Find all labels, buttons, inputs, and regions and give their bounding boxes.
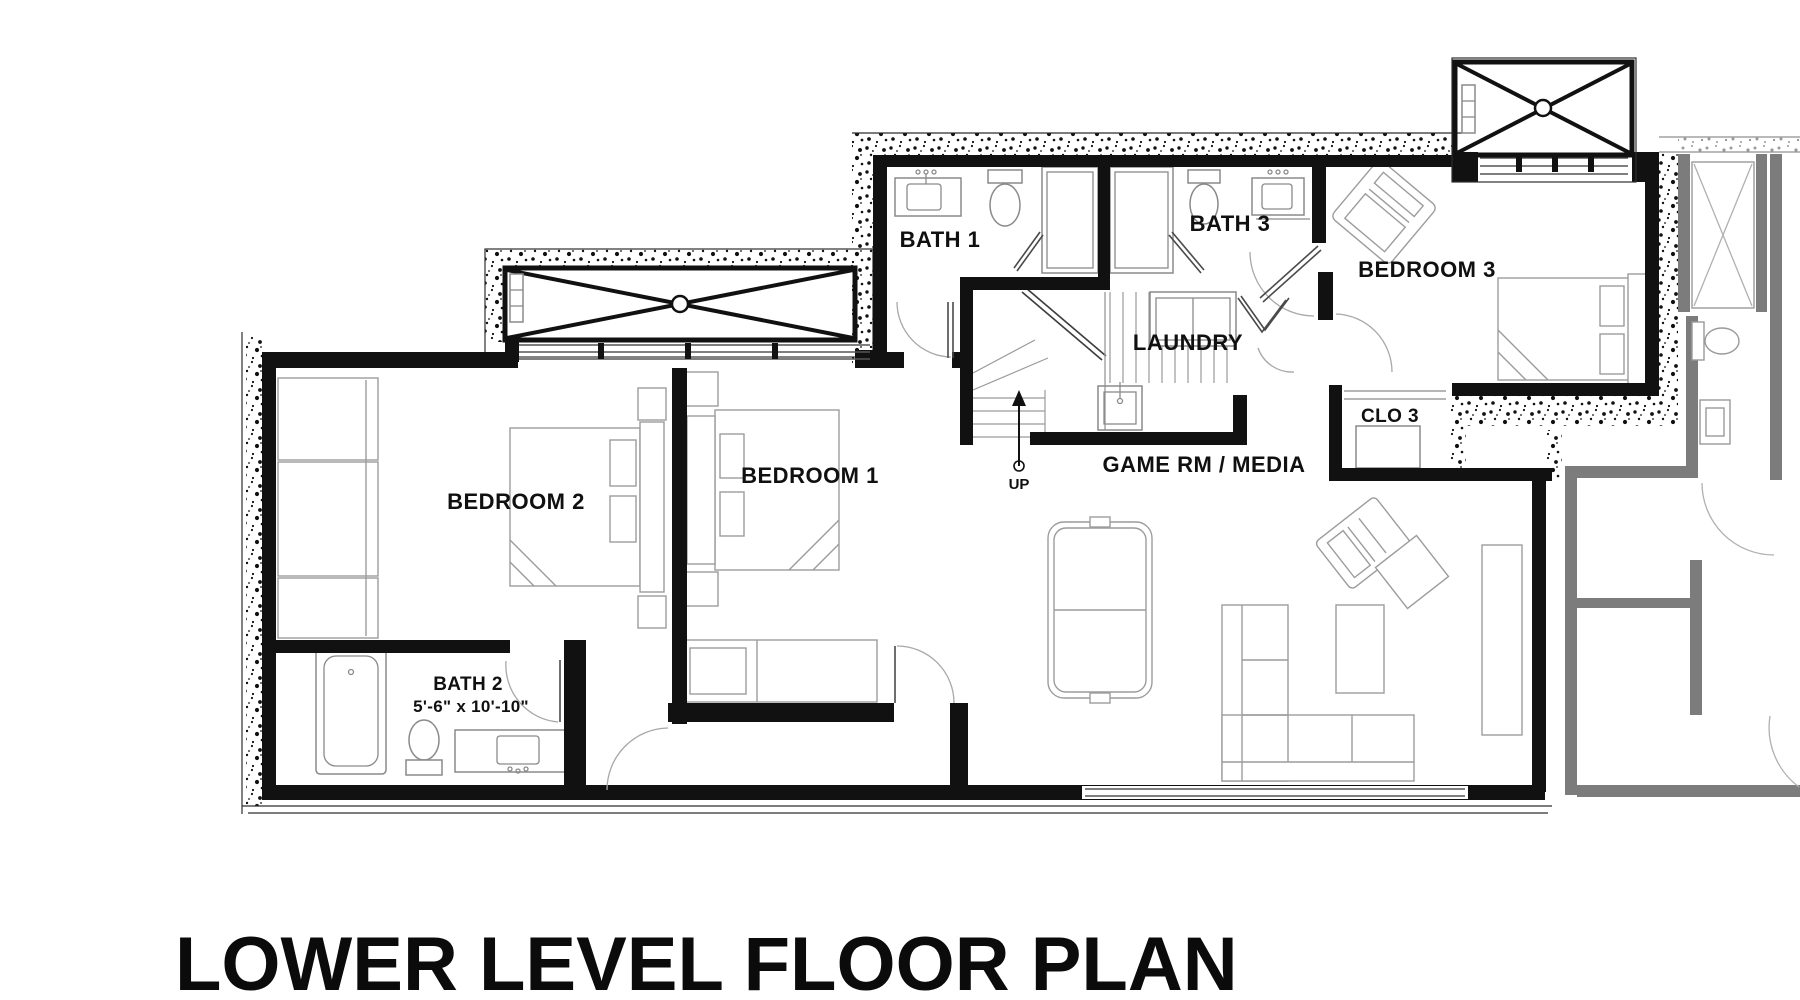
closet3-label: CLO 3 [1361, 406, 1419, 427]
up-label: UP [1009, 476, 1030, 493]
neighbor-door-arc-2 [1769, 716, 1799, 787]
closet3-interior [1344, 391, 1446, 468]
hall-door [1250, 246, 1321, 316]
laundry-bifold-doors [1238, 296, 1294, 372]
bath3-toilet [1188, 170, 1220, 183]
bath2-toilet [409, 720, 439, 760]
window-well-left [505, 268, 855, 340]
bedroom3-window-band [1480, 156, 1628, 174]
window-well-right [1452, 58, 1636, 182]
game-room-window [1082, 786, 1468, 799]
bedroom2-closet-door [607, 728, 668, 790]
nightstand [684, 572, 718, 606]
bedroom2-label: BEDROOM 2 [447, 489, 585, 514]
nightstand [638, 596, 666, 628]
floor-plan-drawing: BATH 1 BATH 3 BEDROOM 3 LAUNDRY CLO 3 BE… [0, 0, 1800, 1000]
nightstand [684, 372, 718, 406]
armchair [1330, 158, 1437, 265]
bath3-shower [1110, 167, 1173, 273]
bedroom3-door [1336, 314, 1392, 372]
up-arrow [1012, 390, 1026, 471]
bath1-fixtures [895, 167, 1098, 273]
bedroom1-label: BEDROOM 1 [741, 463, 879, 488]
media-console [1482, 545, 1522, 735]
plan-title: LOWER LEVEL FLOOR PLAN [175, 922, 1238, 1000]
bedroom3-label: BEDROOM 3 [1358, 257, 1496, 282]
bath1-label: BATH 1 [900, 227, 981, 252]
bedroom-window-band [505, 342, 870, 362]
egress-ladder [510, 274, 523, 322]
ping-pong-table [1048, 517, 1152, 703]
closet-shelf [278, 378, 378, 460]
bath1-toilet [988, 170, 1022, 183]
bath2-dimensions: 5'-6" x 10'-10" [413, 697, 529, 716]
bath1-shower [1042, 167, 1098, 273]
egress-ladder [1462, 85, 1475, 133]
bath3-label: BATH 3 [1190, 211, 1271, 236]
neighbor-toilet [1692, 322, 1739, 360]
bath2-label: BATH 2 [433, 674, 503, 695]
neighbor-sink [1700, 400, 1730, 444]
bedroom1-door [895, 646, 954, 703]
laundry-fixtures [1098, 292, 1236, 430]
floor-plan-page: BATH 1 BATH 3 BEDROOM 3 LAUNDRY CLO 3 BE… [0, 0, 1800, 1000]
neighbor-shower [1692, 162, 1754, 308]
bedroom1-furniture [676, 372, 877, 702]
game-room-furniture [1048, 496, 1522, 781]
neighbor-door-arc [1702, 483, 1774, 555]
bathtub [316, 648, 386, 774]
sectional-sofa [1222, 605, 1414, 781]
game-room-label: GAME RM / MEDIA [1102, 452, 1305, 477]
laundry-label: LAUNDRY [1133, 330, 1243, 355]
adjacent-unit [1565, 154, 1800, 797]
bath1-door [897, 302, 953, 358]
nightstand [638, 388, 666, 420]
coffee-table [1336, 605, 1384, 693]
